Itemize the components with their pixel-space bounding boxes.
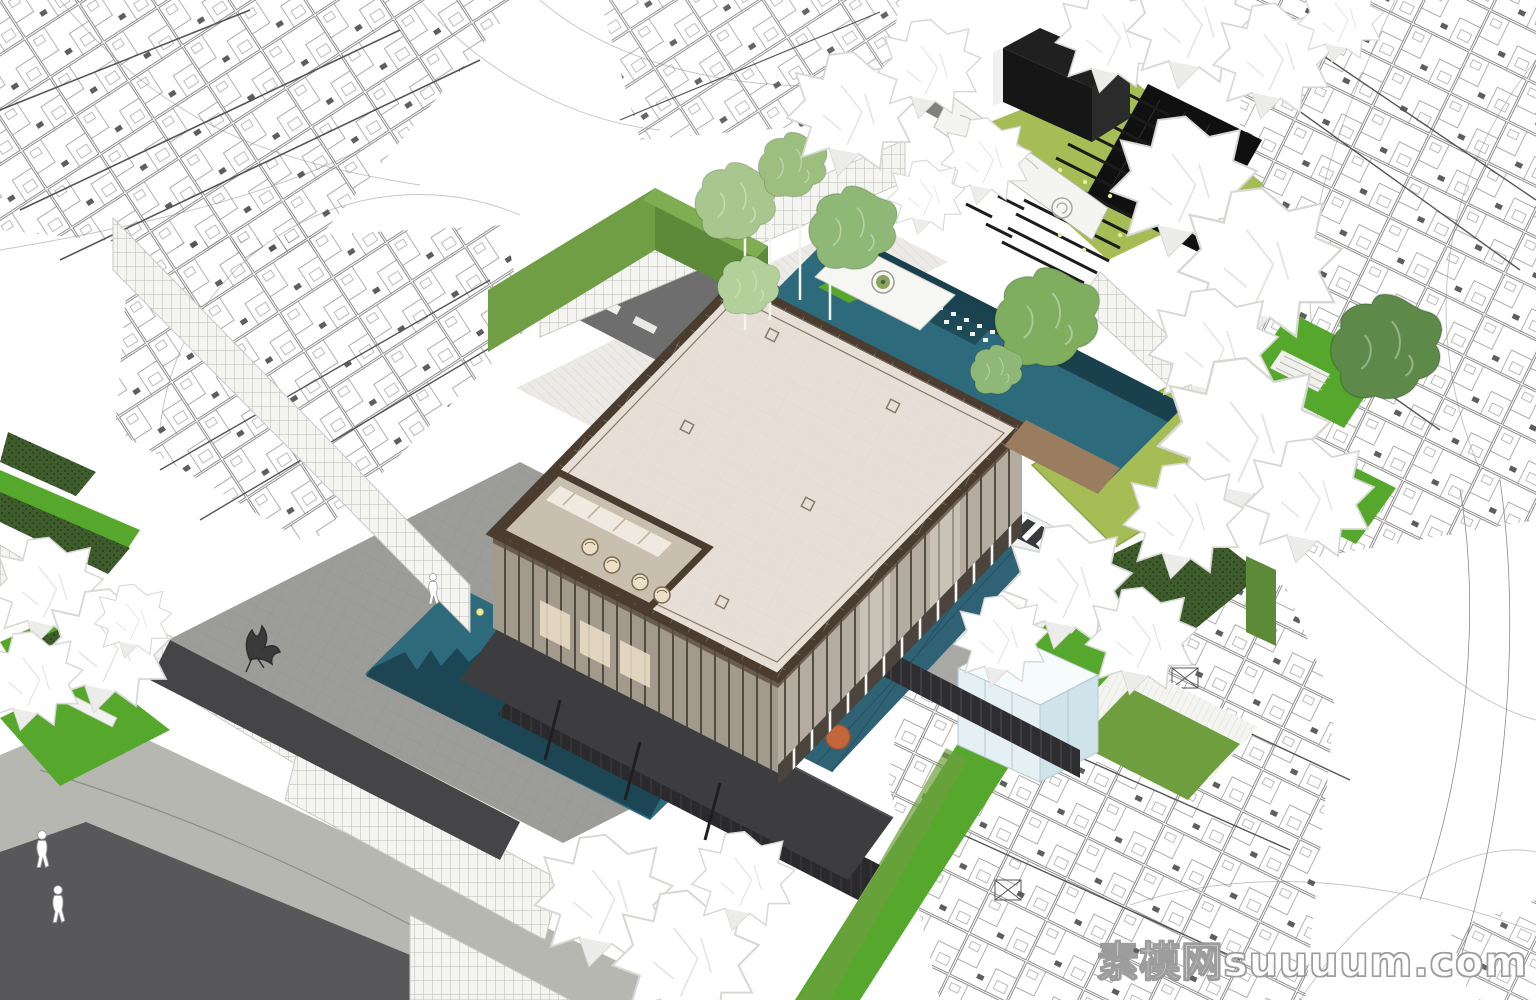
pendant-lamp (582, 539, 598, 555)
architectural-rendering: 素模网suuuum.com (0, 0, 1536, 1000)
watermark: 素模网suuuum.com (1097, 928, 1528, 988)
pendant-lamp (654, 587, 670, 603)
green-boundary-wall (1246, 556, 1276, 646)
pendant-lamp (632, 574, 648, 590)
scene-canvas (0, 0, 1536, 1000)
pendant-lamp (604, 557, 620, 573)
